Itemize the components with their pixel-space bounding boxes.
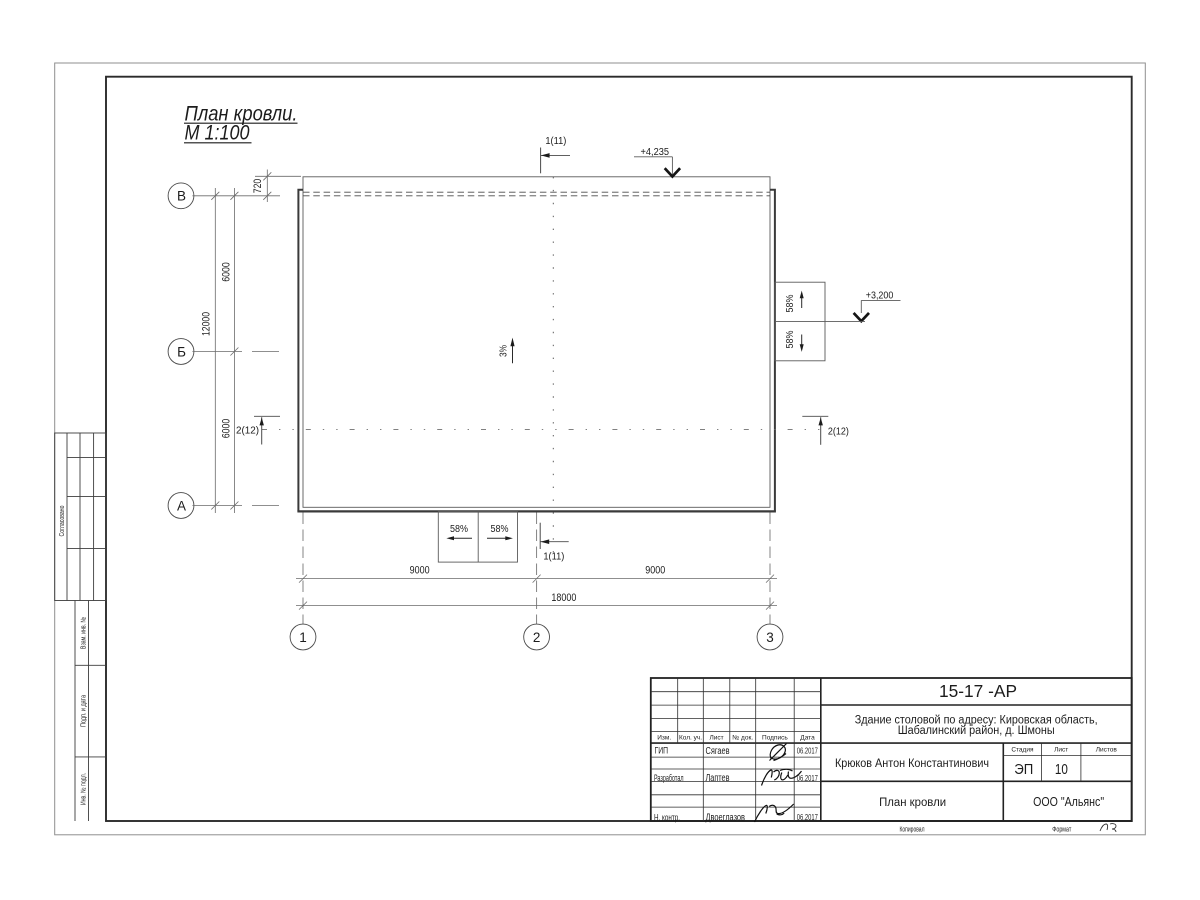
- svg-text:2(12): 2(12): [828, 427, 849, 438]
- svg-text:Разработал: Разработал: [654, 773, 684, 783]
- svg-text:58%: 58%: [785, 330, 796, 348]
- svg-text:Копировал: Копировал: [900, 827, 925, 834]
- svg-text:А: А: [177, 498, 186, 513]
- svg-text:720: 720: [252, 179, 264, 194]
- svg-text:№ док.: № док.: [732, 735, 753, 742]
- svg-text:06.2017: 06.2017: [797, 774, 818, 783]
- svg-text:06.2017: 06.2017: [797, 813, 818, 822]
- svg-text:3: 3: [766, 630, 774, 645]
- svg-text:Н. контр.: Н. контр.: [654, 812, 680, 822]
- svg-text:1: 1: [299, 630, 307, 645]
- svg-text:Листов: Листов: [1096, 747, 1118, 754]
- svg-text:6000: 6000: [220, 419, 232, 439]
- svg-text:2: 2: [533, 630, 541, 645]
- svg-text:ООО "Альянс": ООО "Альянс": [1033, 795, 1104, 809]
- svg-text:Стадия: Стадия: [1011, 747, 1034, 754]
- svg-text:Двоеглазов: Двоеглазов: [706, 812, 746, 823]
- svg-text:1(11): 1(11): [545, 136, 566, 147]
- svg-text:Лист: Лист: [1054, 747, 1068, 754]
- svg-text:В: В: [177, 189, 186, 204]
- svg-text:12000: 12000: [201, 312, 213, 336]
- svg-text:Лаптев: Лаптев: [706, 773, 730, 784]
- svg-text:Сягаев: Сягаев: [706, 746, 730, 757]
- svg-text:58%: 58%: [450, 524, 468, 535]
- svg-text:Формат: Формат: [1052, 827, 1072, 834]
- svg-text:Дата: Дата: [800, 735, 815, 742]
- svg-text:Согласовано: Согласовано: [59, 505, 66, 536]
- svg-text:3%: 3%: [498, 345, 509, 357]
- svg-text:58%: 58%: [785, 294, 796, 312]
- svg-text:Шабалинский район, д. Шмоны: Шабалинский район, д. Шмоны: [898, 725, 1055, 737]
- svg-text:18000: 18000: [551, 592, 576, 604]
- svg-text:Изм.: Изм.: [657, 735, 671, 742]
- svg-text:15-17 -АР: 15-17 -АР: [939, 681, 1017, 701]
- svg-text:Кол. уч.: Кол. уч.: [679, 735, 702, 742]
- svg-text:6000: 6000: [220, 262, 232, 282]
- svg-text:Взам. инв. №: Взам. инв. №: [81, 617, 88, 649]
- svg-text:Подпись: Подпись: [762, 735, 788, 742]
- svg-text:Подп. и дата: Подп. и дата: [81, 695, 88, 727]
- svg-text:ЭП: ЭП: [1014, 761, 1033, 778]
- svg-text:9000: 9000: [410, 564, 430, 576]
- svg-text:06.2017: 06.2017: [797, 746, 818, 755]
- svg-text:58%: 58%: [491, 524, 509, 535]
- svg-text:10: 10: [1055, 761, 1068, 778]
- svg-text:2(12): 2(12): [236, 426, 259, 437]
- svg-text:9000: 9000: [645, 564, 665, 576]
- svg-text:1(11): 1(11): [543, 552, 564, 563]
- svg-text:Б: Б: [177, 344, 186, 359]
- svg-text:ГИП: ГИП: [655, 746, 669, 756]
- svg-text:Инв. № подл.: Инв. № подл.: [81, 773, 88, 805]
- svg-text:М 1:100: М 1:100: [185, 121, 250, 144]
- svg-text:Крюков Антон Константинович: Крюков Антон Константинович: [835, 756, 989, 770]
- svg-text:Лист: Лист: [709, 735, 723, 742]
- svg-text:План кровли: План кровли: [879, 797, 946, 809]
